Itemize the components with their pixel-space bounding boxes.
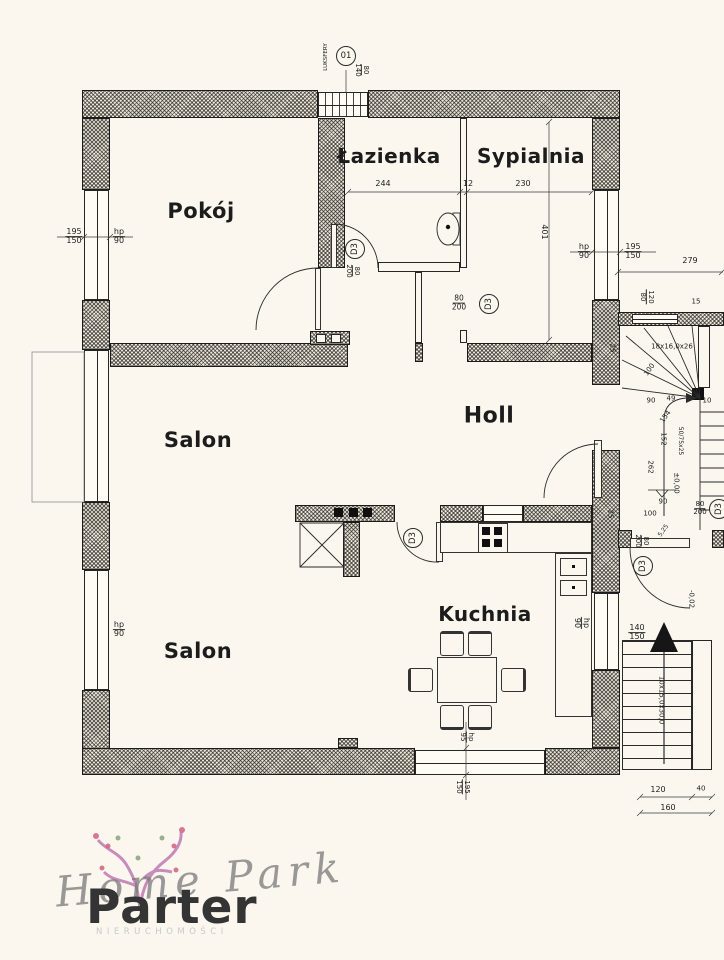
dimension-label: LUKSFERY — [324, 43, 330, 70]
dimension-label: 10 — [703, 397, 712, 404]
dimension-label: 80200 — [452, 295, 466, 312]
dimension-label: 244 — [375, 180, 390, 188]
door-tag-bedroom: D3 — [479, 294, 499, 314]
dimension-label: 401 — [540, 224, 548, 239]
dimension-label: 12080 — [638, 289, 654, 304]
dimension-label: 15 — [692, 298, 701, 305]
dimension-label: 80200 — [633, 534, 649, 547]
dimension-label: hp90 — [113, 228, 125, 246]
dimension-label: ±0,00 — [672, 472, 679, 493]
glass-block-window-tag: 01 — [336, 46, 356, 66]
room-label: Sypialnia — [477, 144, 585, 168]
dimension-label: 80200 — [344, 264, 360, 277]
dimension-label: 25 — [606, 510, 613, 519]
dimension-label: 50/75x25 — [677, 427, 683, 455]
fireplace — [300, 523, 344, 567]
dimension-label: hp90 — [113, 621, 125, 639]
dimension-label: hp95 — [458, 732, 474, 743]
dimension-label: 279 — [682, 257, 697, 265]
floor-title: Parter — [86, 880, 258, 935]
door-tag-kitchen: D3 — [403, 528, 423, 548]
toilet — [437, 213, 460, 245]
room-label: Salon — [164, 428, 232, 452]
dimension-label: 80140 — [353, 63, 369, 76]
winder-stairs — [622, 326, 724, 530]
dimension-label: 140150 — [628, 624, 645, 642]
dimension-label: 152 — [659, 432, 666, 445]
room-label: Holl — [464, 404, 515, 429]
door-tag-stairwell: D3 — [709, 499, 724, 519]
floor-plan: Home Park NIERUCHOMOŚCI Parter PokójŁazi… — [0, 0, 724, 960]
dimension-label: 195150 — [454, 779, 470, 794]
dimension-label: 49 — [667, 395, 676, 402]
dimension-label: 230 — [515, 180, 530, 188]
dimension-label: 18x16,0x26 — [651, 343, 693, 350]
room-label: Kuchnia — [438, 602, 532, 626]
dimension-label: 25 — [608, 344, 615, 353]
dimension-label: 90 — [647, 397, 656, 404]
dimension-label: hp90 — [572, 617, 590, 629]
dimension-label: 195150 — [624, 243, 641, 261]
dimension-label: 12 — [463, 180, 473, 188]
terrace-outline — [32, 352, 84, 502]
dimension-label: 120 — [650, 786, 665, 794]
dimension-label: 90 — [659, 498, 668, 505]
door-tag-back-entrance: D3 — [633, 556, 653, 576]
dimension-label: 40 — [697, 785, 706, 792]
dimension-label: 10x15,0x30,0 — [657, 676, 664, 724]
room-label: Salon — [164, 639, 232, 663]
dimension-label: -0,02 — [687, 590, 694, 608]
dimension-label: 160 — [660, 804, 675, 812]
room-label: Pokój — [167, 199, 234, 223]
dimension-label: 100 — [643, 510, 656, 517]
dimension-label: 195150 — [65, 228, 82, 246]
dimension-label: hp90 — [578, 243, 590, 261]
door-tag-bathroom: D3 — [345, 239, 365, 259]
dimension-label: 262 — [646, 460, 653, 473]
room-label: Łazienka — [337, 144, 440, 168]
dimension-label: 80200 — [693, 501, 706, 517]
watermark-logo: Home Park NIERUCHOMOŚCI Parter — [0, 820, 480, 960]
